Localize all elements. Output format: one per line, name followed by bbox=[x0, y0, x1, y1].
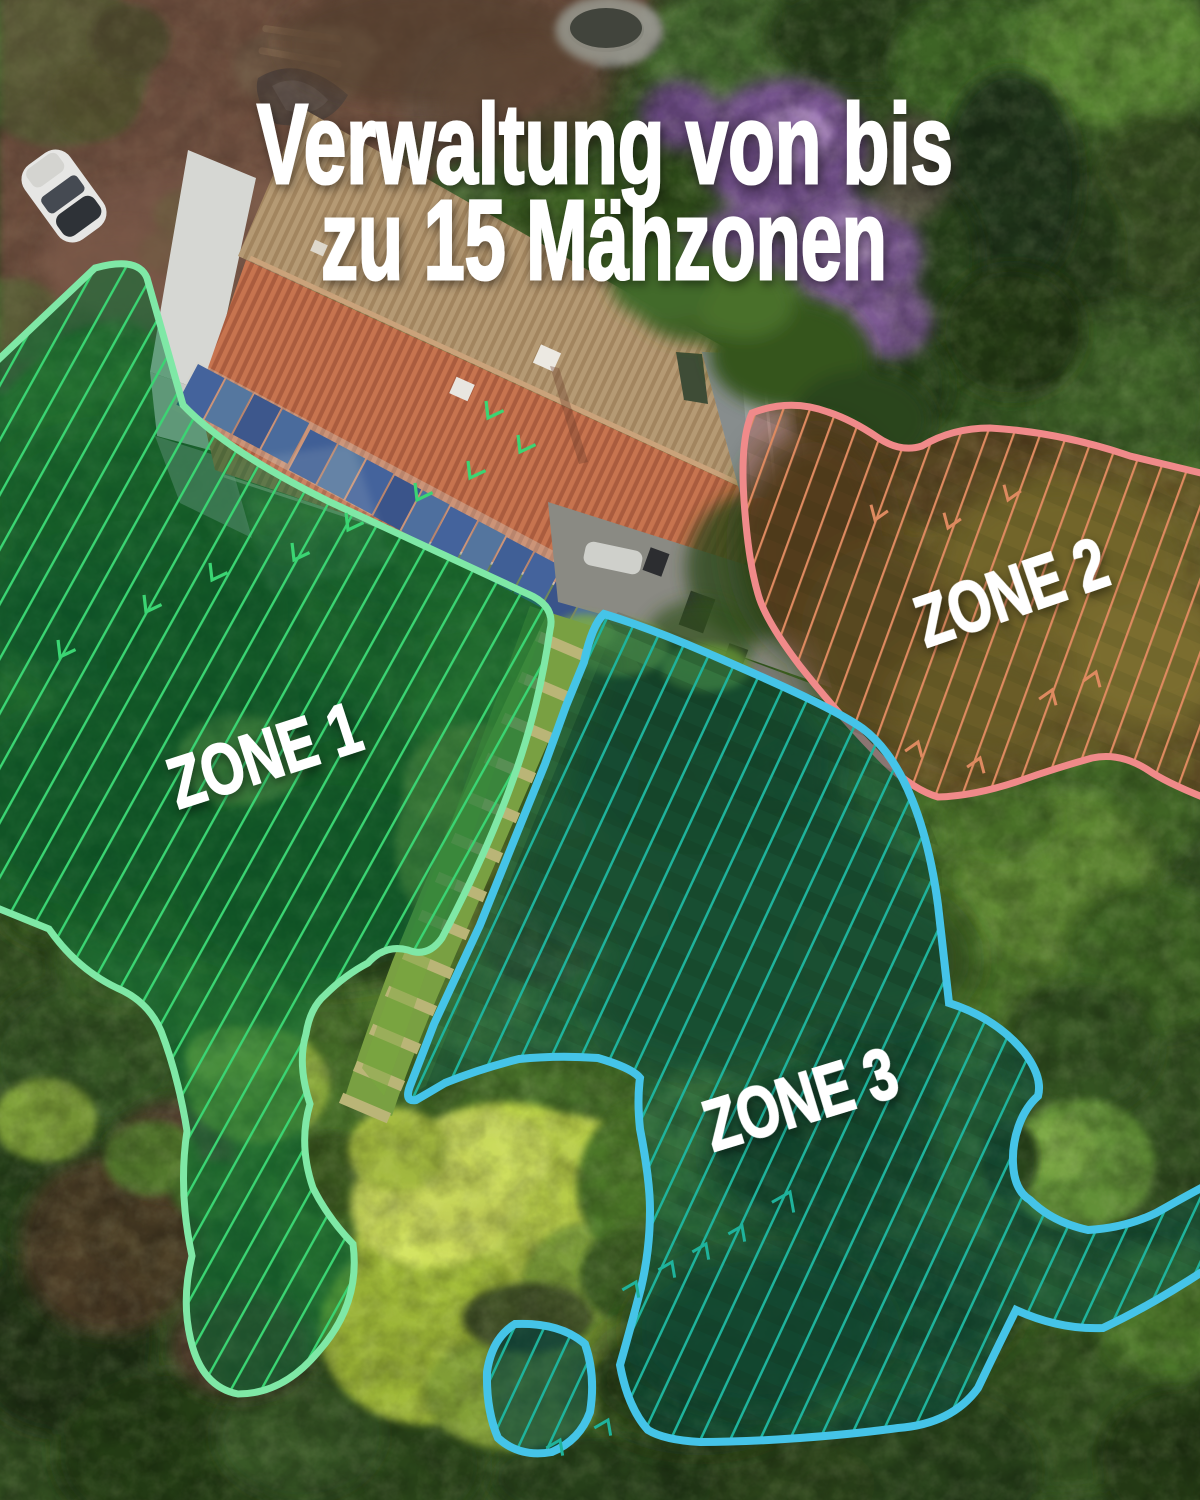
svg-text:zu 15 Mähzonen: zu 15 Mähzonen bbox=[321, 178, 887, 304]
